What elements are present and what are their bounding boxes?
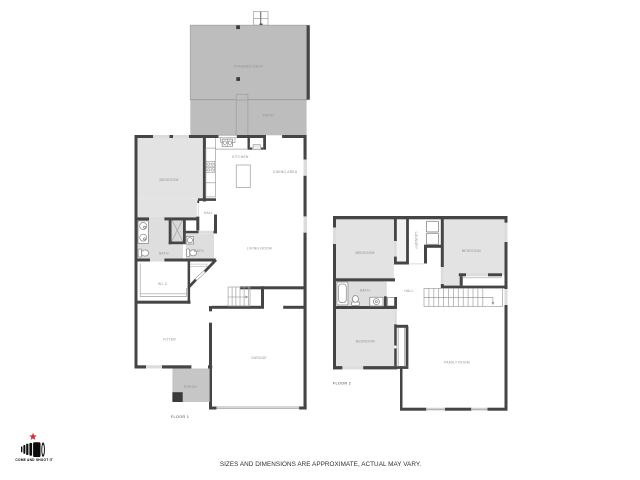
svg-text:PATIO: PATIO — [263, 114, 274, 118]
svg-text:BEDROOM: BEDROOM — [355, 251, 374, 255]
svg-text:SIZES AND DIMENSIONS ARE APPRO: SIZES AND DIMENSIONS ARE APPROXIMATE, AC… — [220, 461, 421, 468]
svg-text:LIVING ROOM: LIVING ROOM — [247, 247, 272, 251]
svg-text:HALL: HALL — [204, 211, 213, 215]
svg-text:KITCHEN: KITCHEN — [232, 155, 249, 159]
svg-text:FLOOR 2: FLOOR 2 — [333, 381, 351, 386]
svg-text:PORCH: PORCH — [184, 385, 198, 389]
svg-text:BEDROOM: BEDROOM — [159, 178, 178, 182]
svg-text:BATH: BATH — [159, 252, 169, 256]
svg-text:FOYER: FOYER — [163, 338, 176, 342]
svg-text:HALL: HALL — [404, 289, 413, 293]
svg-text:FLOOR 1: FLOOR 1 — [171, 414, 189, 419]
svg-text:GARAGE: GARAGE — [251, 356, 267, 360]
svg-text:BEDROOM: BEDROOM — [356, 339, 375, 343]
svg-text:W.I.C.: W.I.C. — [158, 282, 169, 286]
svg-text:BATH: BATH — [194, 249, 204, 253]
svg-text:BATH: BATH — [360, 289, 370, 293]
svg-text:FAMILY ROOM: FAMILY ROOM — [444, 361, 470, 365]
svg-text:DINING AREA: DINING AREA — [273, 170, 298, 174]
svg-text:LAUNDRY: LAUNDRY — [414, 232, 418, 250]
svg-text:COVERED DECK: COVERED DECK — [234, 64, 264, 68]
svg-text:COME AND SHOOT IT: COME AND SHOOT IT — [15, 458, 53, 462]
svg-text:BEDROOM: BEDROOM — [462, 249, 481, 253]
